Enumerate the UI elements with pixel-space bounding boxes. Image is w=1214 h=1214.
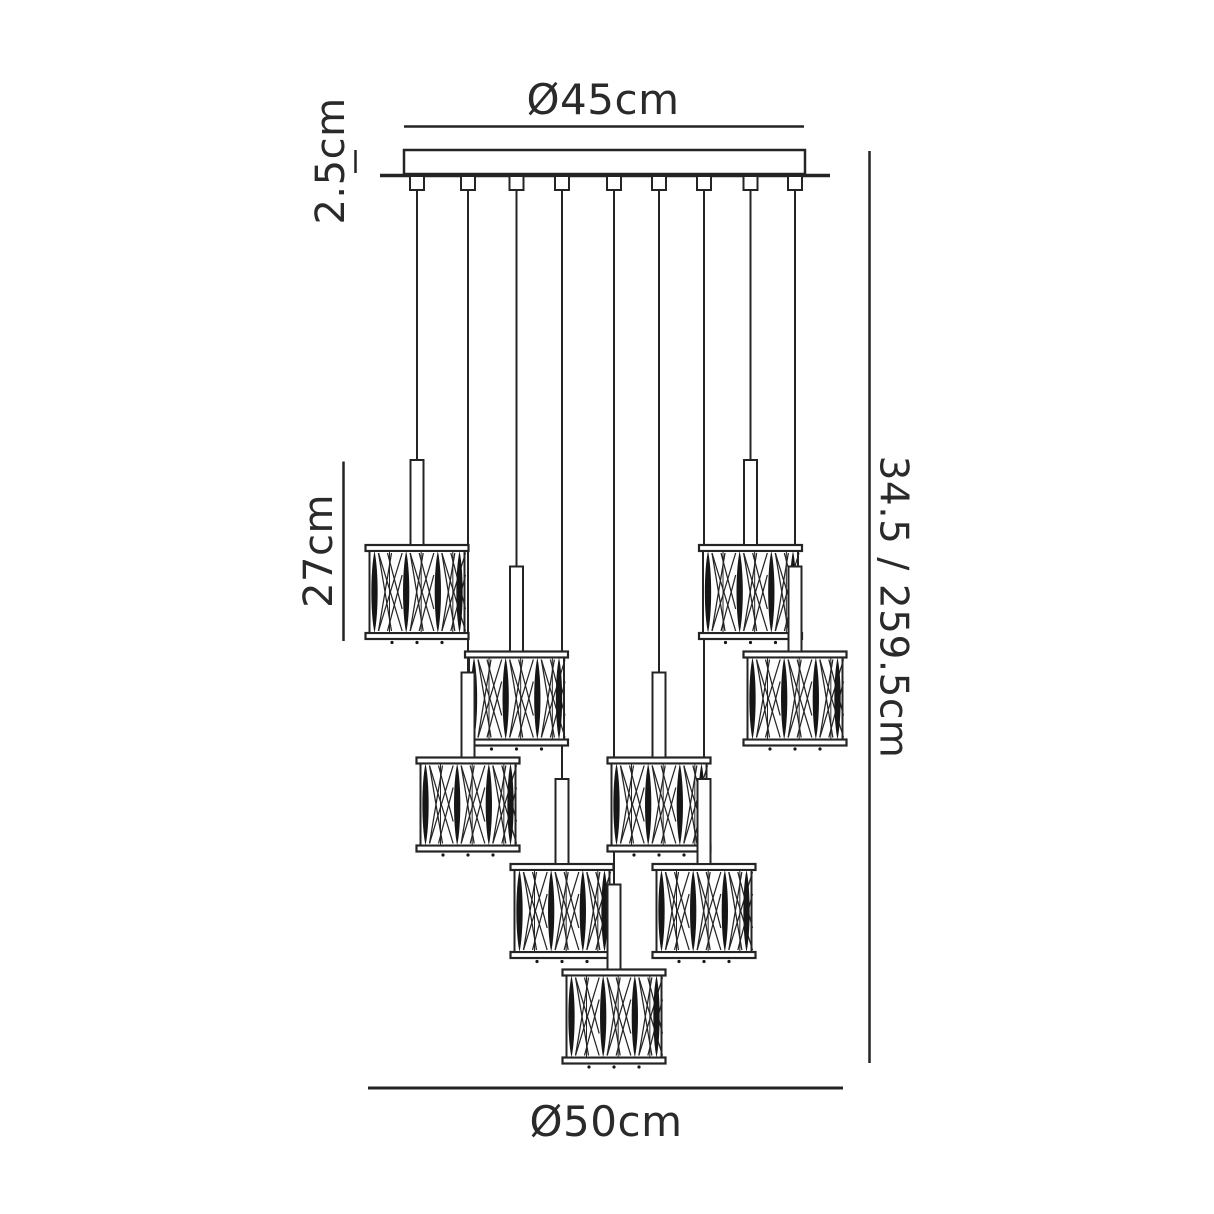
crystal-drum-shade [511, 864, 614, 963]
label-pendant-height: 27cm [299, 494, 339, 608]
label-top-diameter: Ø45cm [526, 79, 679, 121]
crystal-drum-shade [608, 758, 711, 857]
crystal-drum-shade [366, 545, 469, 644]
label-overall-drop: 34.5 / 259.5cm [874, 456, 913, 759]
ceiling-canopy [380, 150, 830, 190]
pendant-light-line-art [0, 0, 1214, 1214]
crystal-drum-shade [563, 970, 666, 1069]
diagram-canvas: Ø45cm 2.5cm 27cm 34.5 / 259.5cm Ø50cm [0, 0, 1214, 1214]
label-bottom-spread: Ø50cm [529, 1101, 682, 1143]
crystal-drum-shade [417, 758, 520, 857]
crystal-drum-shade [465, 652, 568, 751]
crystal-drum-shade [699, 545, 802, 644]
label-canopy-height: 2.5cm [311, 97, 351, 224]
crystal-drum-shade [744, 652, 847, 751]
crystal-drum-shade [653, 864, 756, 963]
